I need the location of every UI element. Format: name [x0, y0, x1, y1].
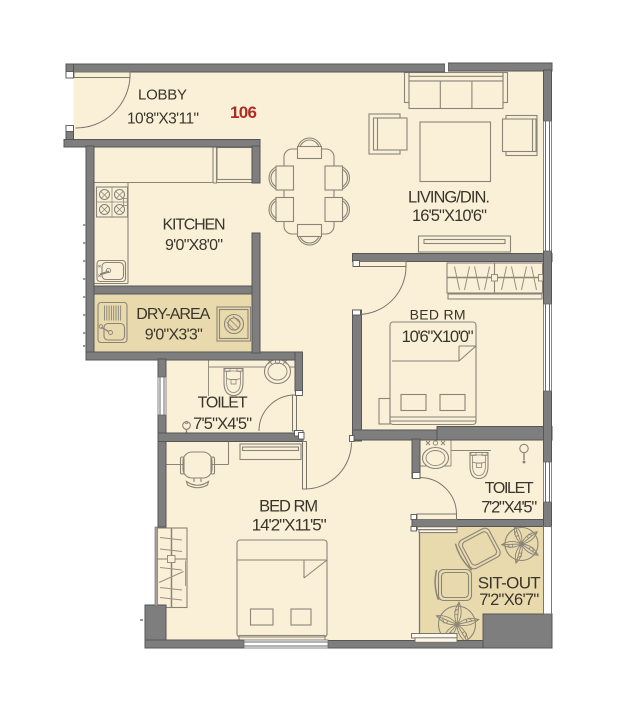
svg-text:9'0"X3'3": 9'0"X3'3" — [145, 327, 203, 344]
svg-text:9'0"X8'0": 9'0"X8'0" — [165, 237, 223, 254]
svg-text:16'5"X10'6": 16'5"X10'6" — [412, 207, 487, 225]
svg-text:TOILET: TOILET — [198, 395, 248, 412]
svg-text:10'8"X3'11": 10'8"X3'11" — [127, 110, 199, 127]
svg-text:BED RM: BED RM — [410, 306, 466, 322]
svg-text:TOILET: TOILET — [485, 480, 534, 497]
svg-text:10'6"X10'0": 10'6"X10'0" — [402, 328, 474, 346]
svg-text:LOBBY: LOBBY — [138, 86, 187, 103]
svg-text:BED RM: BED RM — [259, 498, 318, 516]
svg-text:7'5"X4'5": 7'5"X4'5" — [193, 415, 252, 433]
svg-text:7'2"X6'7": 7'2"X6'7" — [479, 591, 539, 609]
svg-text:106: 106 — [230, 103, 257, 122]
svg-text:SIT-OUT: SIT-OUT — [478, 574, 541, 593]
svg-text:KITCHEN: KITCHEN — [163, 216, 226, 233]
svg-text:DRY-AREA: DRY-AREA — [136, 306, 210, 323]
svg-text:7'2"X4'5": 7'2"X4'5" — [481, 499, 537, 517]
svg-text:14'2"X11'5": 14'2"X11'5" — [252, 516, 327, 535]
svg-text:LIVING/DIN.: LIVING/DIN. — [408, 189, 490, 207]
